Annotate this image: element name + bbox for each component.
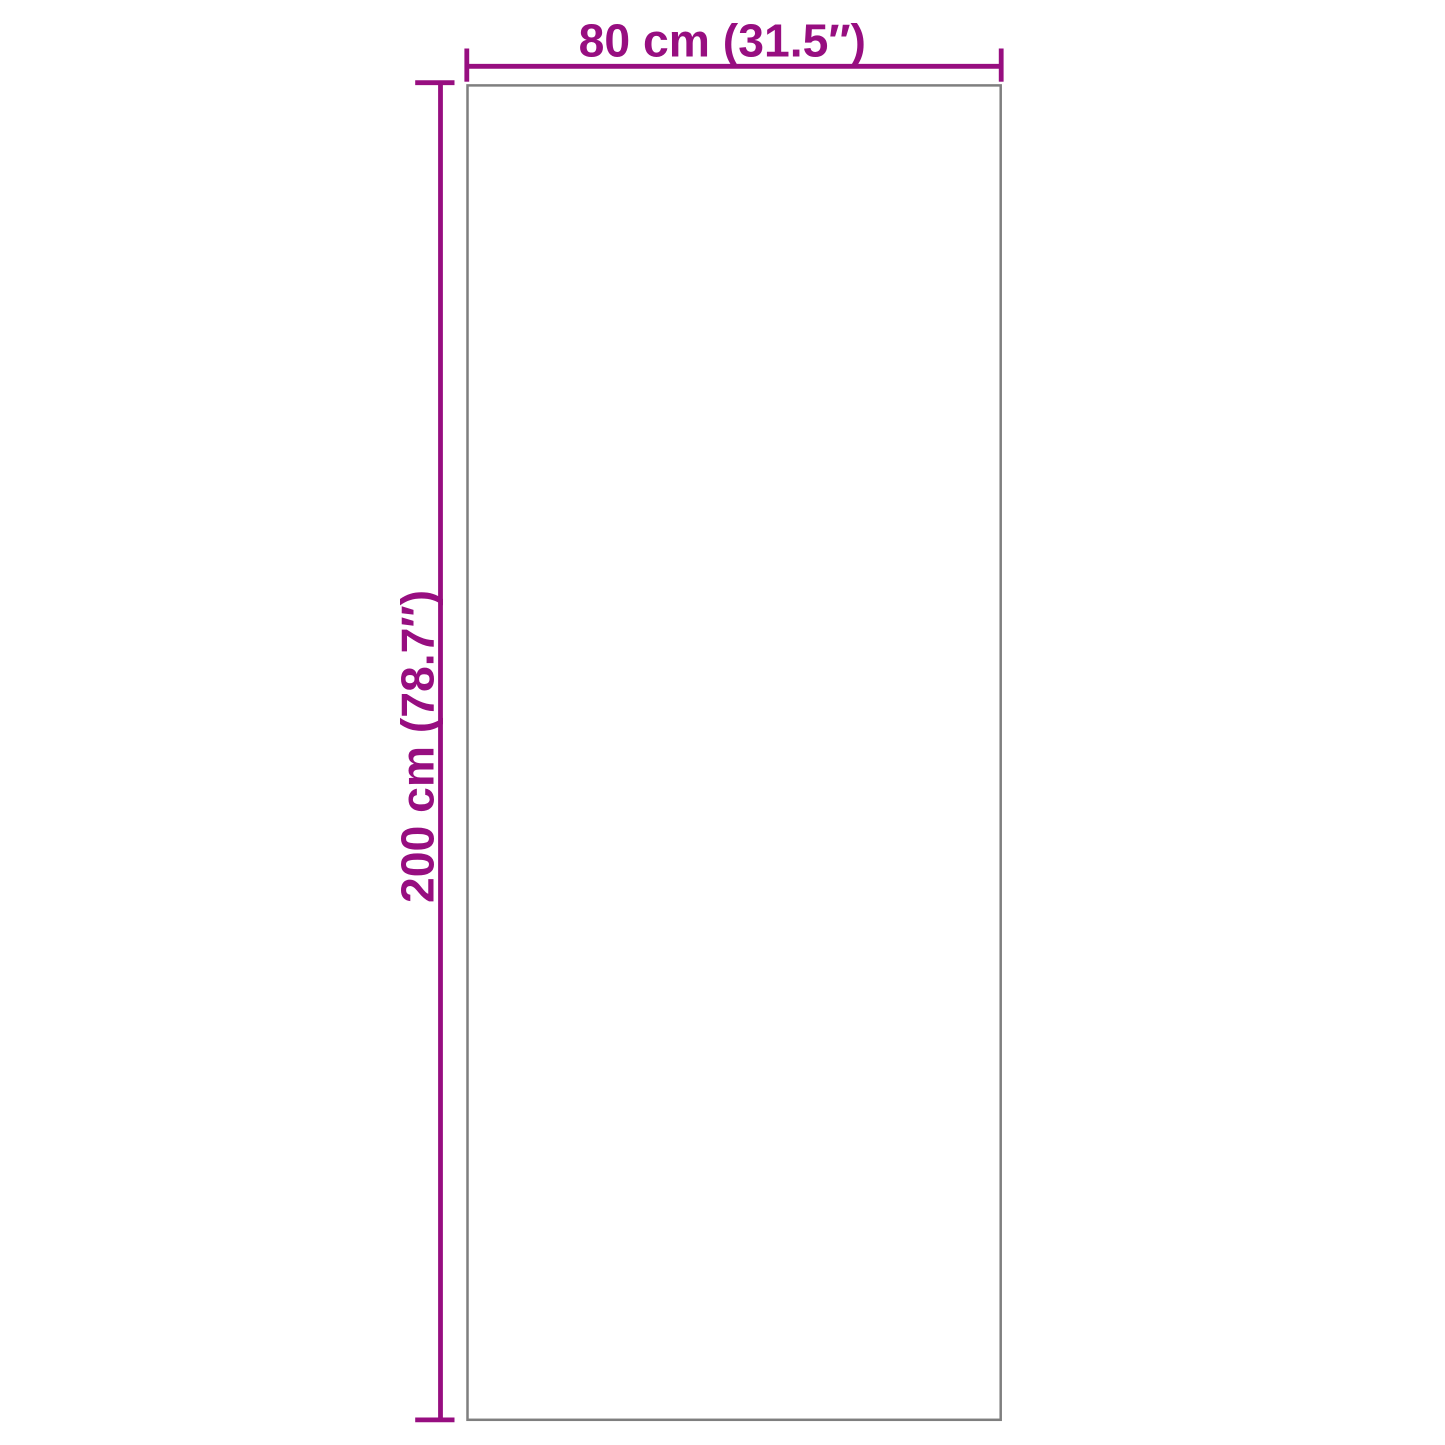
svg-text:200 cm (78.7″): 200 cm (78.7″) — [392, 590, 444, 903]
svg-text:80 cm (31.5″): 80 cm (31.5″) — [579, 15, 866, 67]
